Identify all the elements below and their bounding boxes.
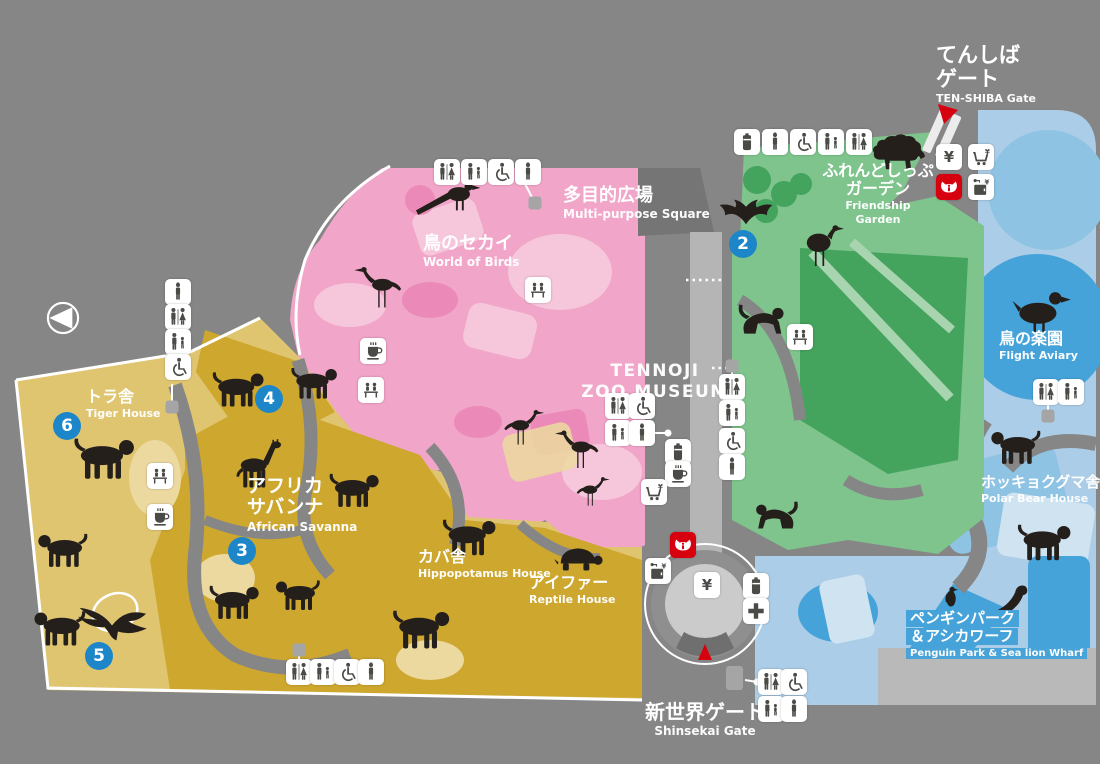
facility-toilet-mw-icon (1033, 379, 1059, 405)
facility-vending-icon (743, 573, 769, 599)
facility-baby-icon (1058, 379, 1084, 405)
area-number-marker-4[interactable]: 4 (255, 385, 283, 413)
connector-pin (726, 360, 739, 373)
facility-toilet-mw-icon (434, 159, 460, 185)
facility-cafe-icon (360, 338, 386, 364)
facility-baby-icon (165, 329, 191, 355)
facility-shop-icon: ¥ (968, 144, 994, 170)
facility-baby-icon (310, 659, 336, 685)
connector-pin (166, 401, 179, 414)
facility-baby-icon (818, 129, 844, 155)
facility-toilet-icon (762, 129, 788, 155)
svg-text:¥: ¥ (702, 577, 713, 594)
facility-viewpoint-icon (525, 277, 551, 303)
facility-wheelchair-icon (334, 659, 360, 685)
facility-vending-icon (734, 129, 760, 155)
facility-locker-icon: ¥ (968, 174, 994, 200)
facility-toilet-icon (165, 279, 191, 305)
facility-toilet-mw-icon (719, 374, 745, 400)
svg-text:¥: ¥ (944, 149, 955, 166)
facility-locker-icon: ¥ (645, 558, 671, 584)
facility-baby-icon (719, 400, 745, 426)
zoo-map: ¥¥¥¥¥¥ てんしばゲートTEN-SHIBA GateふれんどしっぷガーデンF… (0, 0, 1100, 764)
facility-toilet-icon (629, 420, 655, 446)
facility-wheelchair-icon (781, 669, 807, 695)
facility-baby-icon (461, 159, 487, 185)
facility-viewpoint-icon (358, 377, 384, 403)
facility-baby-icon (605, 420, 631, 446)
facility-ticket-icon: ¥ (694, 572, 720, 598)
connector-pin (293, 644, 306, 657)
area-number-marker-3[interactable]: 3 (228, 537, 256, 565)
facility-wheelchair-icon (719, 428, 745, 454)
facility-cafe-icon (147, 504, 173, 530)
facility-ticket-icon: ¥ (936, 144, 962, 170)
facility-toilet-mw-icon (165, 304, 191, 330)
area-number-marker-5[interactable]: 5 (85, 642, 113, 670)
facility-viewpoint-icon (787, 324, 813, 350)
facility-wheelchair-icon (165, 354, 191, 380)
connector-pin (1042, 410, 1055, 423)
facility-toilet-icon (719, 454, 745, 480)
facility-toilet-icon (781, 696, 807, 722)
facility-viewpoint-icon (147, 463, 173, 489)
facility-shop-icon: ¥ (641, 479, 667, 505)
facility-toilet-icon (515, 159, 541, 185)
map-zones (0, 0, 1100, 764)
facility-toilet-icon (358, 659, 384, 685)
facility-wheelchair-icon (488, 159, 514, 185)
connector-pin (529, 197, 542, 210)
facility-info-icon (936, 174, 962, 200)
facility-toilet-mw-icon (605, 393, 631, 419)
facility-cafe-icon (665, 461, 691, 487)
connector-pin (665, 430, 672, 437)
facility-toilet-mw-icon (846, 129, 872, 155)
facility-toilet-mw-icon (286, 659, 312, 685)
facility-firstaid-icon (743, 598, 769, 624)
area-number-marker-2[interactable]: 2 (729, 230, 757, 258)
facility-wheelchair-icon (629, 393, 655, 419)
area-number-marker-6[interactable]: 6 (53, 412, 81, 440)
facility-wheelchair-icon (790, 129, 816, 155)
facility-info-icon (670, 532, 696, 558)
